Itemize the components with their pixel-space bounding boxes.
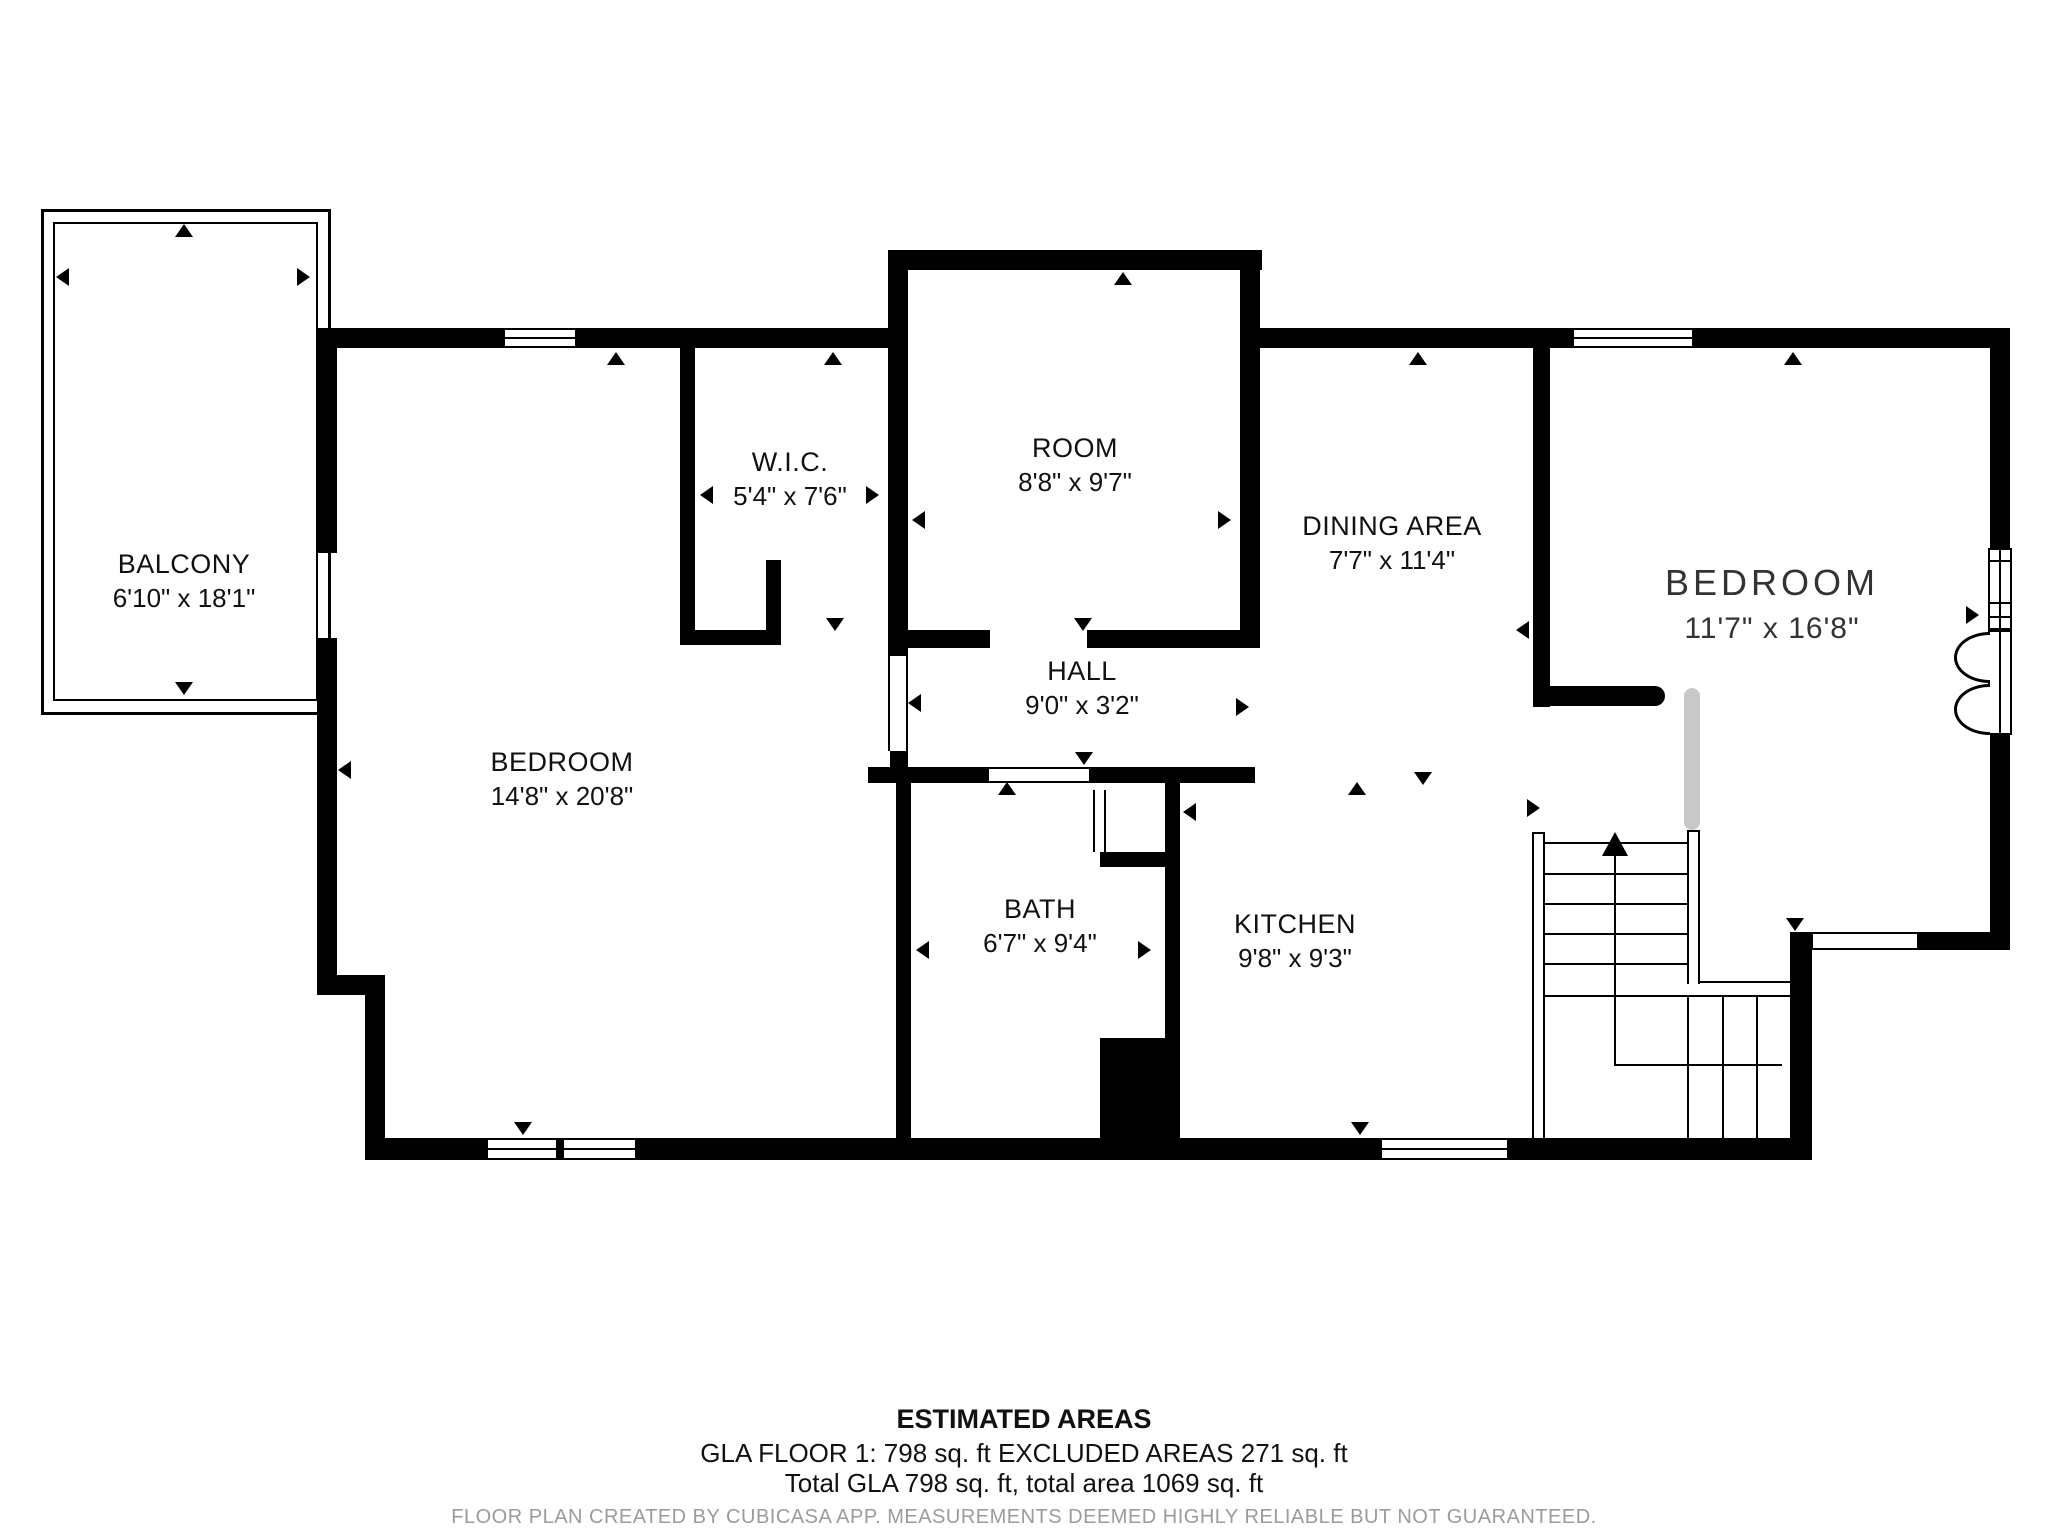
marker-up-icon	[1114, 272, 1132, 285]
marker-down-icon	[175, 682, 193, 695]
room-dimensions: 11'7" x 16'8"	[1665, 612, 1879, 646]
stair-rail-left	[1532, 832, 1545, 1138]
room-label-balcony: BALCONY 6'10" x 18'1"	[113, 549, 256, 614]
closet-door-line-b	[1104, 790, 1106, 852]
marker-right-icon	[1218, 511, 1231, 529]
wall-right-upper	[1990, 348, 2010, 548]
stair-tread-vertical	[1722, 995, 1724, 1138]
stair-tread	[1545, 963, 1687, 965]
marker-right-icon	[1236, 698, 1249, 716]
marker-left-icon	[908, 694, 921, 712]
marker-down-icon	[1786, 918, 1804, 931]
marker-up-icon	[998, 782, 1016, 795]
wall-left-lower	[317, 640, 337, 995]
room-label-hall: HALL 9'0" x 3'2"	[1025, 656, 1139, 721]
marker-right-icon	[1138, 941, 1151, 959]
room-dimensions: 8'8" x 9'7"	[1018, 467, 1132, 498]
room-name: DINING AREA	[1302, 511, 1482, 542]
open-door-leaf	[1684, 688, 1700, 830]
stair-rail-right	[1687, 830, 1700, 984]
room-dimensions: 7'7" x 11'4"	[1302, 545, 1482, 576]
stair-up-arrow-icon	[1602, 832, 1628, 856]
room-dimensions: 6'10" x 18'1"	[113, 583, 256, 614]
marker-down-icon	[514, 1122, 532, 1135]
wall-top-left	[317, 328, 907, 348]
closet-door-line-a	[1093, 790, 1095, 852]
window-top-right	[1563, 328, 1703, 348]
room-label-room: ROOM 8'8" x 9'7"	[1018, 433, 1132, 498]
bath-door-jamb-top	[989, 767, 1089, 769]
marker-left-icon	[1516, 621, 1529, 639]
stair-tread-vertical	[1687, 995, 1689, 1138]
marker-down-icon	[1075, 752, 1093, 765]
marker-up-icon	[175, 224, 193, 237]
wall-wic-stub	[766, 560, 781, 645]
marker-left-icon	[912, 511, 925, 529]
french-door-frame	[1988, 630, 2012, 735]
wall-dining-cap	[1533, 686, 1665, 706]
window-top-left	[496, 328, 584, 348]
room-label-wic: W.I.C. 5'4" x 7'6"	[733, 447, 847, 512]
marker-right-icon	[297, 268, 310, 286]
room-name: HALL	[1025, 656, 1139, 687]
hall-opening-jamb-left	[888, 656, 890, 751]
marker-right-icon	[866, 486, 879, 504]
marker-left-icon	[56, 268, 69, 286]
wall-closet-bottom	[1100, 852, 1180, 867]
room-name: BEDROOM	[1665, 562, 1879, 604]
door-swing-arc-bottom	[1954, 684, 1990, 735]
balcony-door-jamb-top	[317, 551, 337, 553]
room-label-bath: BATH 6'7" x 9'4"	[983, 894, 1097, 959]
room-name: ROOM	[1018, 433, 1132, 464]
wall-room-bottom-left	[890, 630, 990, 648]
total-gla-line: Total GLA 798 sq. ft, total area 1069 sq…	[0, 1468, 2048, 1499]
wall-dining-bedroom	[1533, 348, 1550, 707]
wall-room-bottom-right	[1087, 630, 1260, 648]
wall-right-lower	[1790, 932, 1812, 1160]
marker-up-icon	[607, 352, 625, 365]
floor-plan-canvas: BALCONY 6'10" x 18'1" W.I.C. 5'4" x 7'6"…	[0, 0, 2048, 1536]
marker-left-icon	[916, 941, 929, 959]
wall-bath-left	[896, 783, 911, 1160]
marker-up-icon	[824, 352, 842, 365]
marker-left-icon	[1183, 803, 1196, 821]
wall-wic-left	[680, 348, 695, 645]
marker-left-icon	[338, 761, 351, 779]
marker-up-icon	[1348, 782, 1366, 795]
room-name: W.I.C.	[733, 447, 847, 478]
wall-bedroom-bottom-right	[1917, 932, 2010, 950]
wall-room-right	[1240, 250, 1260, 648]
room-label-kitchen: KITCHEN 9'8" x 9'3"	[1234, 909, 1356, 974]
balcony-inner-rail	[53, 222, 318, 701]
room-dimensions: 6'7" x 9'4"	[983, 928, 1097, 959]
room-dimensions: 9'8" x 9'3"	[1234, 943, 1356, 974]
wall-hall-bottom-left	[868, 767, 989, 783]
estimated-areas-title: ESTIMATED AREAS	[0, 1404, 2048, 1435]
wall-left-upper	[317, 328, 337, 553]
wall-right-mid	[1990, 735, 2010, 950]
wall-room-top	[888, 250, 1262, 270]
marker-down-icon	[1351, 1122, 1369, 1135]
wall-room-left	[888, 250, 908, 656]
marker-down-icon	[826, 618, 844, 631]
marker-down-icon	[1074, 618, 1092, 631]
room-dimensions: 5'4" x 7'6"	[733, 481, 847, 512]
wall-hall-bottom-right	[1089, 767, 1255, 783]
disclaimer-text: FLOOR PLAN CREATED BY CUBICASA APP. MEAS…	[0, 1506, 2048, 1529]
wall-kitchen-left	[1165, 783, 1180, 1038]
marker-up-icon	[1409, 352, 1427, 365]
window-right-wall	[1988, 548, 2012, 630]
bedroom-exit-jamb-bottom	[1813, 948, 1917, 950]
room-name: BATH	[983, 894, 1097, 925]
room-name: BALCONY	[113, 549, 256, 580]
marker-up-icon	[1784, 352, 1802, 365]
room-label-bedroom-left: BEDROOM 14'8" x 20'8"	[490, 747, 633, 812]
gla-floor-line: GLA FLOOR 1: 798 sq. ft EXCLUDED AREAS 2…	[0, 1438, 2048, 1469]
room-dimensions: 9'0" x 3'2"	[1025, 690, 1139, 721]
room-name: KITCHEN	[1234, 909, 1356, 940]
stair-direction-line-vertical	[1614, 852, 1616, 1066]
stair-tread-wide	[1545, 995, 1790, 997]
room-label-dining-area: DINING AREA 7'7" x 11'4"	[1302, 511, 1482, 576]
bedroom-exit-jamb-top	[1813, 932, 1917, 934]
room-label-bedroom-right: BEDROOM 11'7" x 16'8"	[1665, 562, 1879, 646]
room-name: BEDROOM	[490, 747, 633, 778]
stair-tread	[1545, 903, 1687, 905]
window-kitchen-bottom	[1372, 1138, 1517, 1160]
marker-down-icon	[1414, 772, 1432, 785]
stair-direction-line-horizontal	[1614, 1064, 1782, 1066]
stair-tread-vertical	[1756, 995, 1758, 1138]
marker-right-icon	[1527, 799, 1540, 817]
wall-step-vertical	[365, 995, 385, 1160]
stair-tread	[1545, 873, 1687, 875]
stair-tread	[1545, 933, 1687, 935]
stair-landing-line	[1700, 981, 1790, 983]
wall-chase-block	[1100, 1038, 1180, 1160]
door-swing-arc-top	[1954, 632, 1990, 683]
balcony-door-jamb-bottom	[317, 638, 337, 640]
marker-right-icon	[1966, 606, 1979, 624]
room-dimensions: 14'8" x 20'8"	[490, 781, 633, 812]
marker-left-icon	[700, 486, 713, 504]
window-bedroom-bottom-double	[478, 1138, 645, 1160]
